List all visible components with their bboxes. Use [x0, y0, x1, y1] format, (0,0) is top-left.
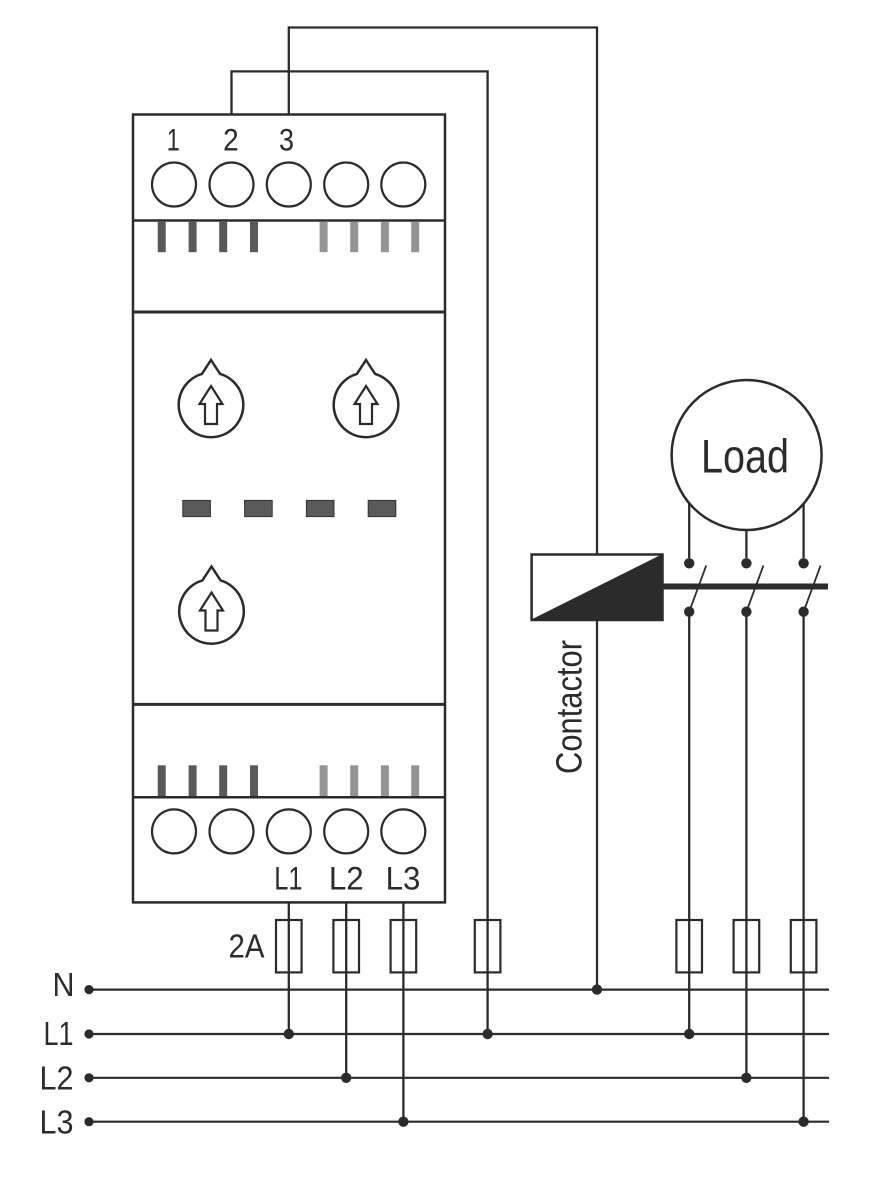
svg-text:Load: Load — [701, 430, 789, 483]
svg-text:L2: L2 — [40, 1059, 74, 1096]
svg-text:L1: L1 — [274, 861, 302, 897]
svg-text:1: 1 — [167, 122, 180, 158]
svg-text:Contactor: Contactor — [549, 640, 590, 774]
svg-text:2A: 2A — [229, 928, 265, 965]
svg-text:L3: L3 — [40, 1103, 74, 1140]
svg-text:L2: L2 — [329, 861, 364, 897]
svg-text:N: N — [53, 966, 75, 1003]
svg-text:L3: L3 — [386, 861, 421, 897]
svg-text:3: 3 — [279, 122, 294, 158]
svg-text:L1: L1 — [44, 1015, 74, 1052]
svg-text:2: 2 — [223, 122, 239, 158]
